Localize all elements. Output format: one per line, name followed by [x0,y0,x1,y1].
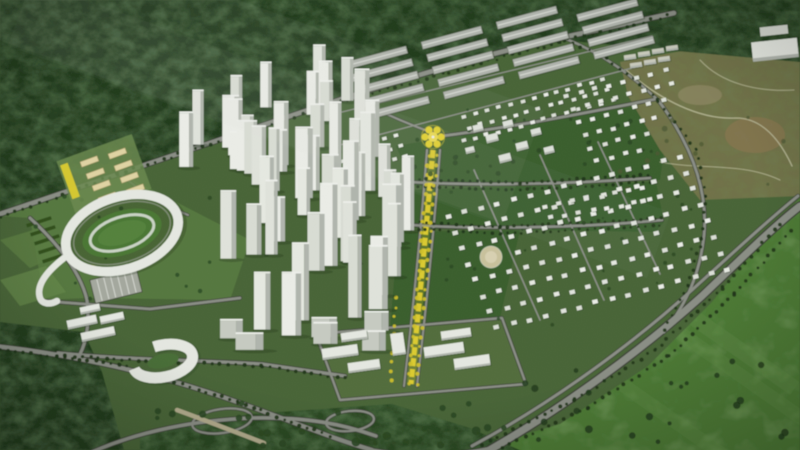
masterplan-aerial-image [0,0,800,450]
vignette [0,0,800,450]
aerial-rendering-svg [0,0,800,450]
